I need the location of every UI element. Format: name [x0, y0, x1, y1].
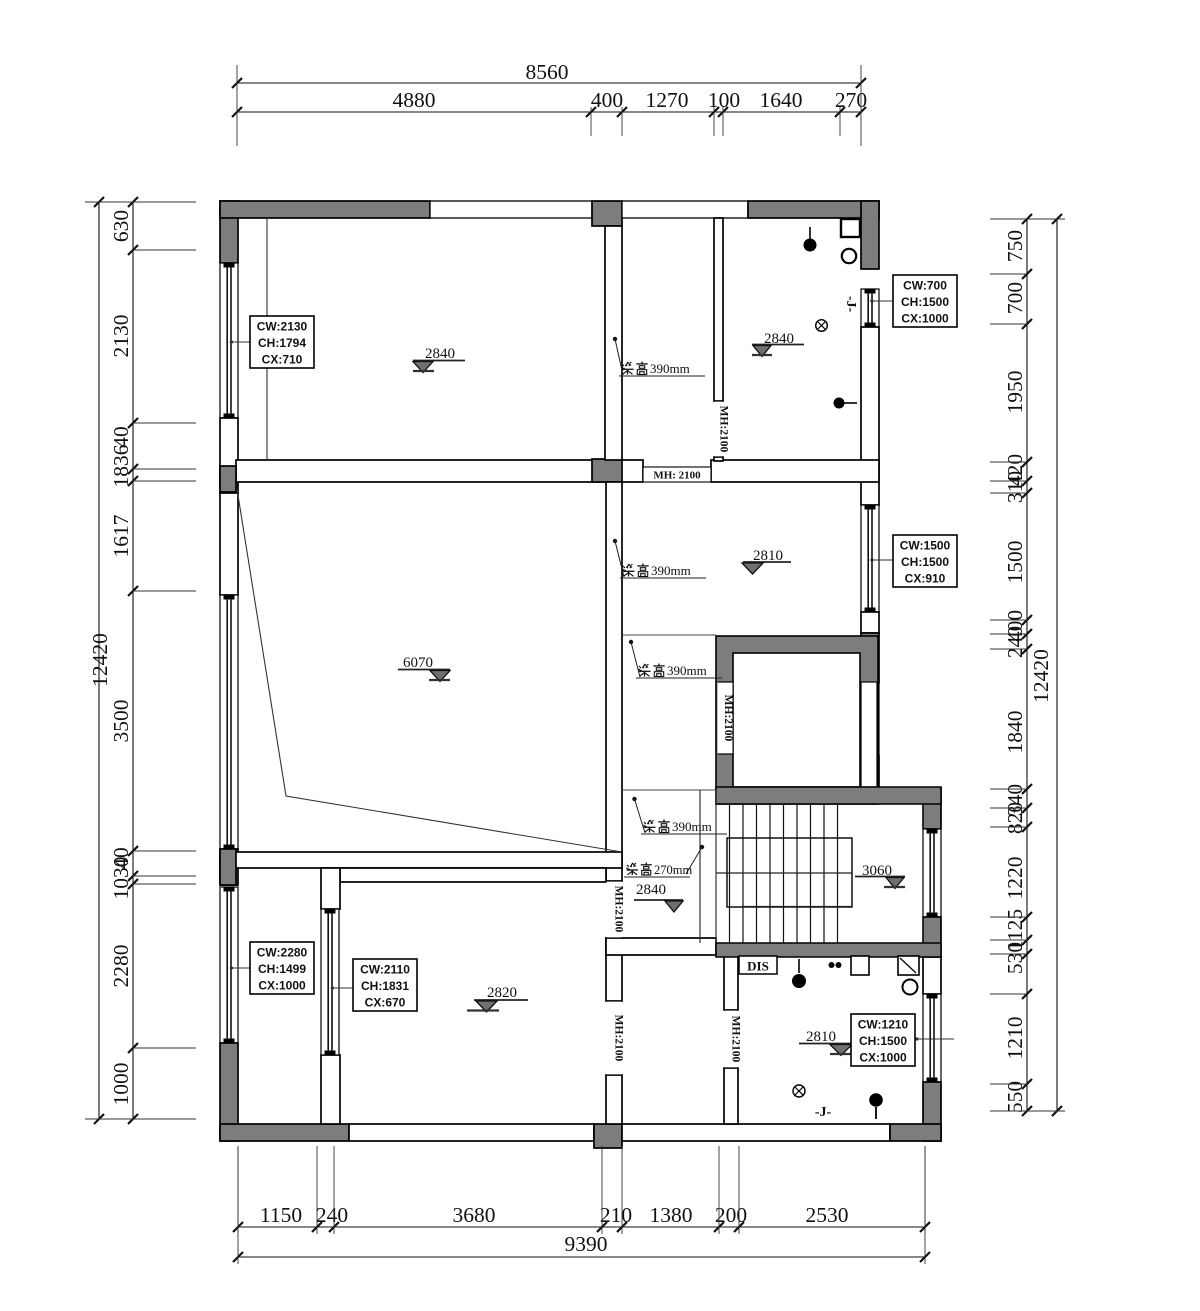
svg-text:1640: 1640 [760, 88, 803, 112]
svg-text:-J-: -J- [815, 1105, 832, 1120]
svg-text:3500: 3500 [109, 700, 133, 743]
svg-text:1210: 1210 [1003, 1017, 1027, 1060]
svg-text:240: 240 [1003, 626, 1027, 658]
svg-text:1500: 1500 [1003, 541, 1027, 584]
svg-text:CH:1794: CH:1794 [258, 336, 306, 350]
svg-text:2130: 2130 [109, 315, 133, 358]
svg-text:CW:1210: CW:1210 [858, 1018, 909, 1032]
svg-text:1380: 1380 [650, 1203, 693, 1227]
svg-text:630: 630 [109, 210, 133, 242]
svg-text:1617: 1617 [109, 514, 133, 557]
svg-text:12420: 12420 [88, 633, 112, 687]
svg-text:700: 700 [1003, 282, 1027, 314]
svg-text:CX:1000: CX:1000 [901, 311, 949, 325]
svg-text:1950: 1950 [1003, 371, 1027, 414]
svg-text:CH:1499: CH:1499 [258, 962, 306, 976]
svg-text:550: 550 [1003, 1081, 1027, 1113]
svg-text:12420: 12420 [1029, 649, 1053, 703]
svg-text:210: 210 [600, 1203, 632, 1227]
svg-text:390mm: 390mm [672, 819, 712, 834]
svg-text:-J-: -J- [843, 296, 858, 313]
svg-text:200: 200 [715, 1203, 747, 1227]
svg-text:2820: 2820 [487, 985, 517, 1001]
svg-text:2530: 2530 [806, 1203, 849, 1227]
svg-text:1840: 1840 [1003, 711, 1027, 754]
svg-text:CW:2280: CW:2280 [257, 946, 308, 960]
svg-text:1000: 1000 [109, 1063, 133, 1106]
svg-text:530: 530 [1003, 942, 1027, 974]
svg-text:100: 100 [708, 88, 740, 112]
svg-text:MH:2100: MH:2100 [730, 1016, 742, 1063]
svg-text:390mm: 390mm [650, 361, 690, 376]
svg-text:3680: 3680 [453, 1203, 496, 1227]
svg-text:750: 750 [1003, 230, 1027, 262]
svg-text:390mm: 390mm [651, 563, 691, 578]
svg-text:9390: 9390 [565, 1232, 608, 1256]
svg-text:4880: 4880 [393, 88, 436, 112]
svg-text:40: 40 [109, 426, 133, 448]
svg-text:DIS: DIS [747, 959, 769, 974]
svg-text:400: 400 [591, 88, 623, 112]
svg-text:1150: 1150 [260, 1203, 302, 1227]
svg-text:310: 310 [1003, 471, 1027, 503]
svg-text:2840: 2840 [636, 882, 666, 898]
svg-text:240: 240 [316, 1203, 348, 1227]
svg-text:CW:700: CW:700 [903, 279, 947, 293]
svg-text:MH:2100: MH:2100 [613, 1015, 625, 1062]
svg-text:1836: 1836 [109, 444, 133, 487]
svg-text:1270: 1270 [646, 88, 689, 112]
svg-text:CX:910: CX:910 [905, 571, 946, 585]
svg-text:8560: 8560 [526, 60, 569, 84]
svg-text:2280: 2280 [109, 945, 133, 988]
svg-text:CH:1500: CH:1500 [901, 555, 949, 569]
svg-text:1220: 1220 [1003, 857, 1027, 900]
svg-text:CW:1500: CW:1500 [900, 539, 951, 553]
svg-text:CH:1500: CH:1500 [859, 1034, 907, 1048]
svg-text:1030: 1030 [109, 857, 133, 900]
svg-text:CH:1500: CH:1500 [901, 295, 949, 309]
svg-text:CW:2130: CW:2130 [257, 320, 308, 334]
svg-text:390mm: 390mm [667, 663, 707, 678]
svg-text:270mm: 270mm [654, 863, 692, 877]
svg-text:CX:710: CX:710 [262, 352, 303, 366]
svg-text:820: 820 [1003, 802, 1027, 834]
svg-text:MH:2100: MH:2100 [613, 886, 625, 933]
svg-text:MH:2100: MH:2100 [718, 406, 730, 453]
svg-text:CX:670: CX:670 [365, 995, 406, 1009]
svg-text:CH:1831: CH:1831 [361, 979, 409, 993]
svg-text:MH:2100: MH:2100 [722, 695, 734, 742]
svg-text:CX:1000: CX:1000 [859, 1050, 907, 1064]
svg-text:CW:2110: CW:2110 [360, 963, 410, 977]
svg-text:CX:1000: CX:1000 [258, 978, 306, 992]
svg-text:MH: 2100: MH: 2100 [653, 470, 701, 482]
